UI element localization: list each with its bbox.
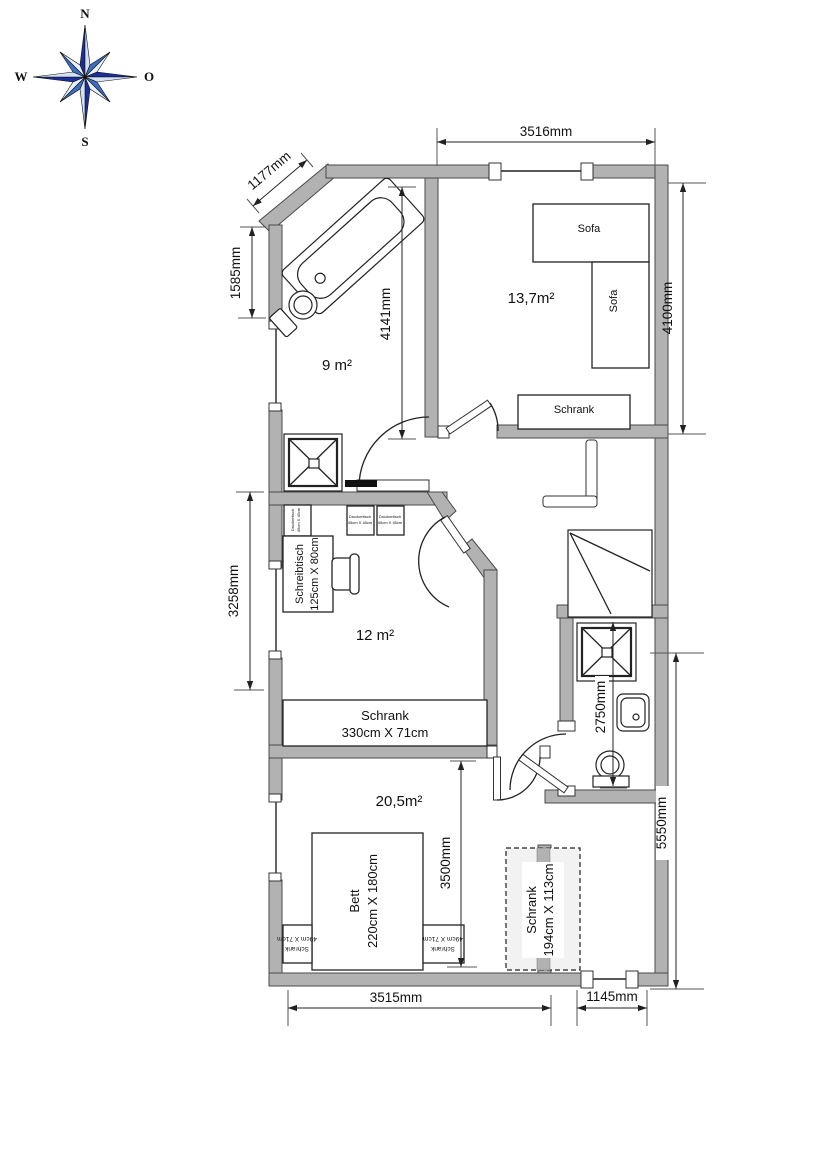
dim-label-4141: 4141mm: [378, 288, 393, 341]
desk-chair-back: [350, 554, 359, 594]
nightstand-left: Schrank 49cm X 71cm: [277, 925, 317, 963]
window-cap: [269, 794, 281, 802]
desk: [283, 536, 333, 612]
wall-bottom-left: [269, 973, 587, 986]
nightstand-label: Schrank: [430, 945, 455, 952]
compass-label-west: W: [15, 69, 28, 84]
wall-bath2-left: [560, 618, 573, 730]
printer-table-left: Druckertisch 45cm X 45cm: [284, 505, 311, 536]
window-cap: [489, 163, 501, 180]
wardrobe-dashed: Schrank 194cm X 113cm: [506, 848, 580, 970]
schrank-living-label: Schrank: [554, 404, 595, 416]
wall-bath1-bottom: [269, 492, 447, 505]
schrank-330-label: 330cm X 71cm: [342, 725, 429, 740]
dim-label-3258: 3258mm: [226, 565, 241, 618]
dim-label-3516: 3516mm: [520, 124, 573, 139]
door-leaf-bedroom: [494, 757, 501, 800]
window-cap: [269, 403, 281, 411]
sink-bath2: [617, 694, 649, 731]
winder-outline: [568, 530, 652, 617]
nightstand-right: Schrank 49cm X 71cm: [423, 925, 464, 963]
window-cap: [269, 561, 281, 569]
compass-label-south: S: [81, 134, 88, 149]
dim-label-5550: 5550mm: [654, 797, 669, 850]
printer-table-label: 45cm X 45cm: [296, 507, 301, 532]
wall-left-block-b: [269, 410, 282, 568]
sofa-vertical: [592, 262, 649, 368]
door-jamb: [487, 746, 497, 758]
shower-bath2: [577, 623, 636, 681]
compass-rose: N O S W: [15, 6, 155, 149]
door-leaf-bath2: [519, 754, 568, 793]
wall-left-block-d: [269, 880, 282, 973]
room-label-bath1: 9 m²: [322, 357, 352, 374]
door-jamb: [558, 721, 575, 731]
compass-label-east: O: [144, 69, 154, 84]
dim-label-2750: 2750mm: [593, 681, 608, 734]
hall-winder: [568, 530, 652, 617]
window-cap: [626, 971, 638, 988]
shower-bath1: [284, 434, 342, 491]
toilet-bath2: [593, 751, 629, 787]
sofa-horizontal-label: Sofa: [578, 223, 602, 235]
printer-table-label: 45cm X 45cm: [378, 520, 403, 525]
printer-table-label: Druckertisch: [349, 514, 371, 519]
wall-hall-diagonal-upper: [427, 492, 456, 521]
door-leaf-office: [441, 516, 470, 553]
wall-top-left-segment: [326, 165, 497, 178]
nightstand-label: Schrank: [284, 945, 309, 952]
room-label-office: 12 m²: [356, 627, 394, 644]
window-cap: [269, 651, 281, 659]
floorplan-page: N O S W: [0, 0, 826, 1169]
wardrobe-label: 194cm X 113cm: [541, 864, 556, 957]
wardrobe-label: Schrank: [524, 886, 539, 934]
wall-bedroom-top: [269, 745, 497, 758]
dim-label-1177: 1177mm: [245, 148, 294, 193]
door-leaf-living: [446, 400, 491, 434]
room-label-living: 13,7m²: [508, 290, 555, 307]
nightstand-label: 49cm X 71cm: [277, 935, 317, 942]
threshold-bar: [345, 480, 377, 487]
window-cap: [581, 971, 593, 988]
wall-left-block-c: [269, 658, 282, 800]
bed-label: 220cm X 180cm: [365, 854, 380, 948]
wall-bath1-living-divider: [425, 178, 438, 437]
desk-label: 125cm X 80cm: [309, 537, 321, 610]
door-arc-office: [419, 517, 449, 607]
printer-table-label: Druckertisch: [379, 514, 401, 519]
dim-label-3500: 3500mm: [438, 837, 453, 890]
floorplan-drawing: N O S W: [0, 0, 826, 1169]
printer-table-label: 45cm X 45cm: [348, 520, 373, 525]
printer-table-label: Druckertisch: [290, 509, 295, 531]
nightstand-label: 49cm X 71cm: [423, 935, 463, 942]
printer-table-mid: Druckertisch 45cm X 45cm: [347, 506, 374, 535]
desk-label: Schreibtisch: [294, 544, 306, 604]
bed-label: Bett: [347, 889, 362, 913]
dim-label-1585: 1585mm: [228, 247, 243, 300]
door-arc-bath1: [359, 417, 429, 487]
window-cap: [269, 873, 281, 881]
hall-closet-door-vertical: [586, 440, 597, 502]
dim-label-4100: 4100mm: [660, 282, 675, 335]
hall-closet-door-horizontal: [543, 496, 597, 507]
printer-table-right: Druckertisch 45cm X 45cm: [377, 506, 404, 535]
dim-label-3515: 3515mm: [370, 990, 423, 1005]
schrank-330-label: Schrank: [361, 708, 409, 723]
sofa-vertical-label: Sofa: [608, 289, 620, 313]
door-jamb: [540, 746, 550, 758]
window-cap: [581, 163, 593, 180]
room-label-bedroom: 20,5m²: [376, 793, 423, 810]
dim-label-1145: 1145mm: [586, 989, 638, 1004]
compass-label-north: N: [80, 6, 90, 21]
